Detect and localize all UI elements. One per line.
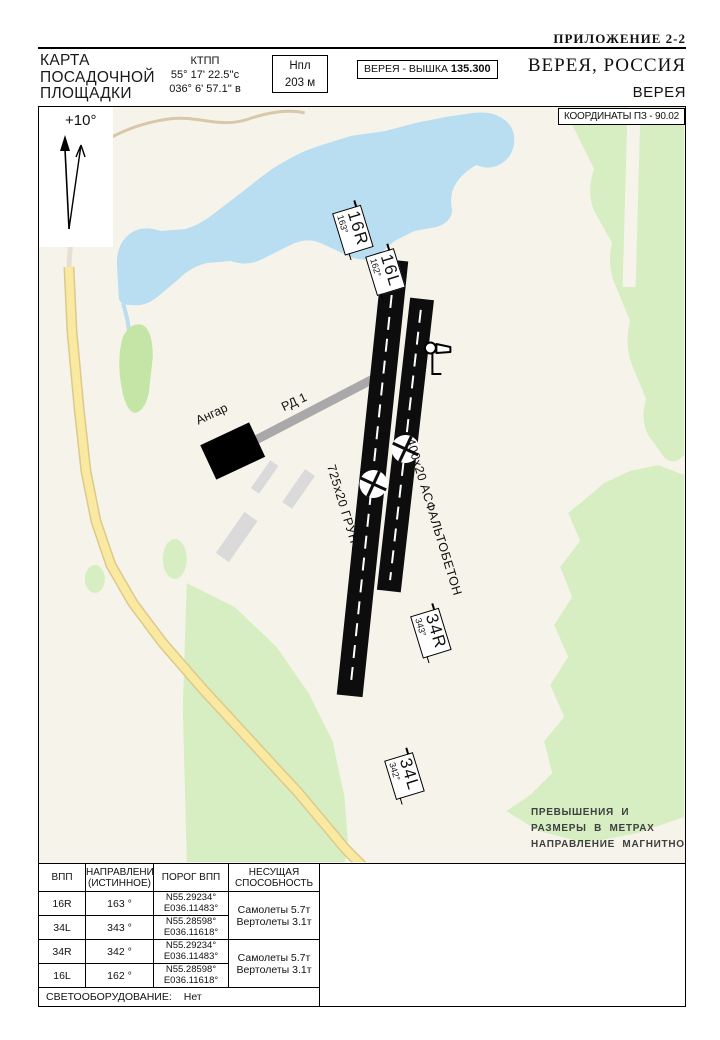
windsock-icon <box>425 343 450 375</box>
table-header-row: ВПП НАПРАВЛЕНИЕ(ИСТИННОЕ) ПОРОГ ВПП НЕСУ… <box>39 864 320 892</box>
map-note-line2: РАЗМЕРЫ В МЕТРАХ <box>531 821 686 837</box>
col-header-threshold: ПОРОГ ВПП <box>154 864 229 892</box>
north-declination-box: +10° <box>39 107 113 247</box>
elevation-value: 203 м <box>273 75 327 92</box>
cell-capacity: Самолеты 5.7тВертолеты 3.1т <box>229 940 320 988</box>
lighting-label: СВЕТООБОРУДОВАНИЕ: <box>46 991 172 1003</box>
ktpp-lon: 036° 6' 57.1'' в <box>138 82 272 96</box>
cell-rwy: 16L <box>39 964 86 988</box>
ktpp-coordinates: КТПП 55° 17' 22.5''с 036° 6' 57.1'' в <box>138 54 272 96</box>
cell-rwy: 34R <box>39 940 86 964</box>
cell-rwy: 34L <box>39 916 86 940</box>
forest-left-patch <box>119 324 153 413</box>
dirt-road-top <box>89 111 305 153</box>
cell-threshold: N55.28598°E036.11618° <box>154 916 229 940</box>
airfield-map: +10° КООРДИНАТЫ ПЗ - 90.02 16R 163° 16L … <box>38 106 686 864</box>
elevation-label: Нпл <box>273 58 327 75</box>
page-title-site: ВЕРЕЯ <box>633 84 686 101</box>
page-title-city: ВЕРЕЯ, РОССИЯ <box>528 55 686 77</box>
table-row: 34R 342 ° N55.29234°E036.11483° Самолеты… <box>39 940 320 964</box>
runway-data-table: ВПП НАПРАВЛЕНИЕ(ИСТИННОЕ) ПОРОГ ВПП НЕСУ… <box>38 863 320 1007</box>
map-note-line1: ПРЕВЫШЕНИЯ И <box>531 805 686 821</box>
cell-threshold: N55.29234°E036.11483° <box>154 940 229 964</box>
cell-rwy: 16R <box>39 892 86 916</box>
lighting-value: Нет <box>184 991 202 1003</box>
forest-blob-1 <box>163 539 187 579</box>
tower-frequency-box: ВЕРЕЯ - ВЫШКА 135.300 <box>357 60 498 79</box>
cell-threshold: N55.29234°E036.11483° <box>154 892 229 916</box>
appendix-label: ПРИЛОЖЕНИЕ 2-2 <box>553 31 686 47</box>
lighting-cell: СВЕТООБОРУДОВАНИЕ:Нет <box>39 988 320 1007</box>
cell-threshold: N55.28598°E036.11618° <box>154 964 229 988</box>
north-arrows-icon <box>39 107 113 247</box>
forest-blob-2 <box>85 565 105 593</box>
building-1 <box>251 460 279 494</box>
col-header-rwy: ВПП <box>39 864 86 892</box>
map-note: ПРЕВЫШЕНИЯ И РАЗМЕРЫ В МЕТРАХ НАПРАВЛЕНИ… <box>531 805 686 853</box>
cell-true-dir: 342 ° <box>86 940 154 964</box>
tower-callsign: ВЕРЕЯ - ВЫШКА <box>364 63 448 75</box>
header-rule <box>38 47 686 49</box>
hangar <box>200 422 265 479</box>
lighting-row: СВЕТООБОРУДОВАНИЕ:Нет <box>39 988 320 1007</box>
cell-true-dir: 162 ° <box>86 964 154 988</box>
map-note-line3: НАПРАВЛЕНИЕ МАГНИТНОЕ <box>531 837 686 853</box>
building-2 <box>282 469 315 509</box>
forest-upper-right <box>558 107 684 462</box>
table-row: 16R 163 ° N55.29234°E036.11483° Самолеты… <box>39 892 320 916</box>
forest-road-gap <box>629 107 634 287</box>
coords-system-box: КООРДИНАТЫ ПЗ - 90.02 <box>558 108 685 125</box>
bottom-panel: ВПП НАПРАВЛЕНИЕ(ИСТИННОЕ) ПОРОГ ВПП НЕСУ… <box>38 864 686 1007</box>
lake-water <box>117 113 514 306</box>
cell-true-dir: 163 ° <box>86 892 154 916</box>
forest-lower-right <box>506 465 684 843</box>
ktpp-label: КТПП <box>138 54 272 68</box>
cell-capacity: Самолеты 5.7тВертолеты 3.1т <box>229 892 320 940</box>
elevation-box: Нпл 203 м <box>272 55 328 93</box>
building-3 <box>216 512 258 562</box>
cell-true-dir: 343 ° <box>86 916 154 940</box>
col-header-direction: НАПРАВЛЕНИЕ(ИСТИННОЕ) <box>86 864 154 892</box>
col-header-capacity: НЕСУЩАЯСПОСОБНОСТЬ <box>229 864 320 892</box>
ktpp-lat: 55° 17' 22.5''с <box>138 68 272 82</box>
tower-frequency: 135.300 <box>451 63 491 75</box>
